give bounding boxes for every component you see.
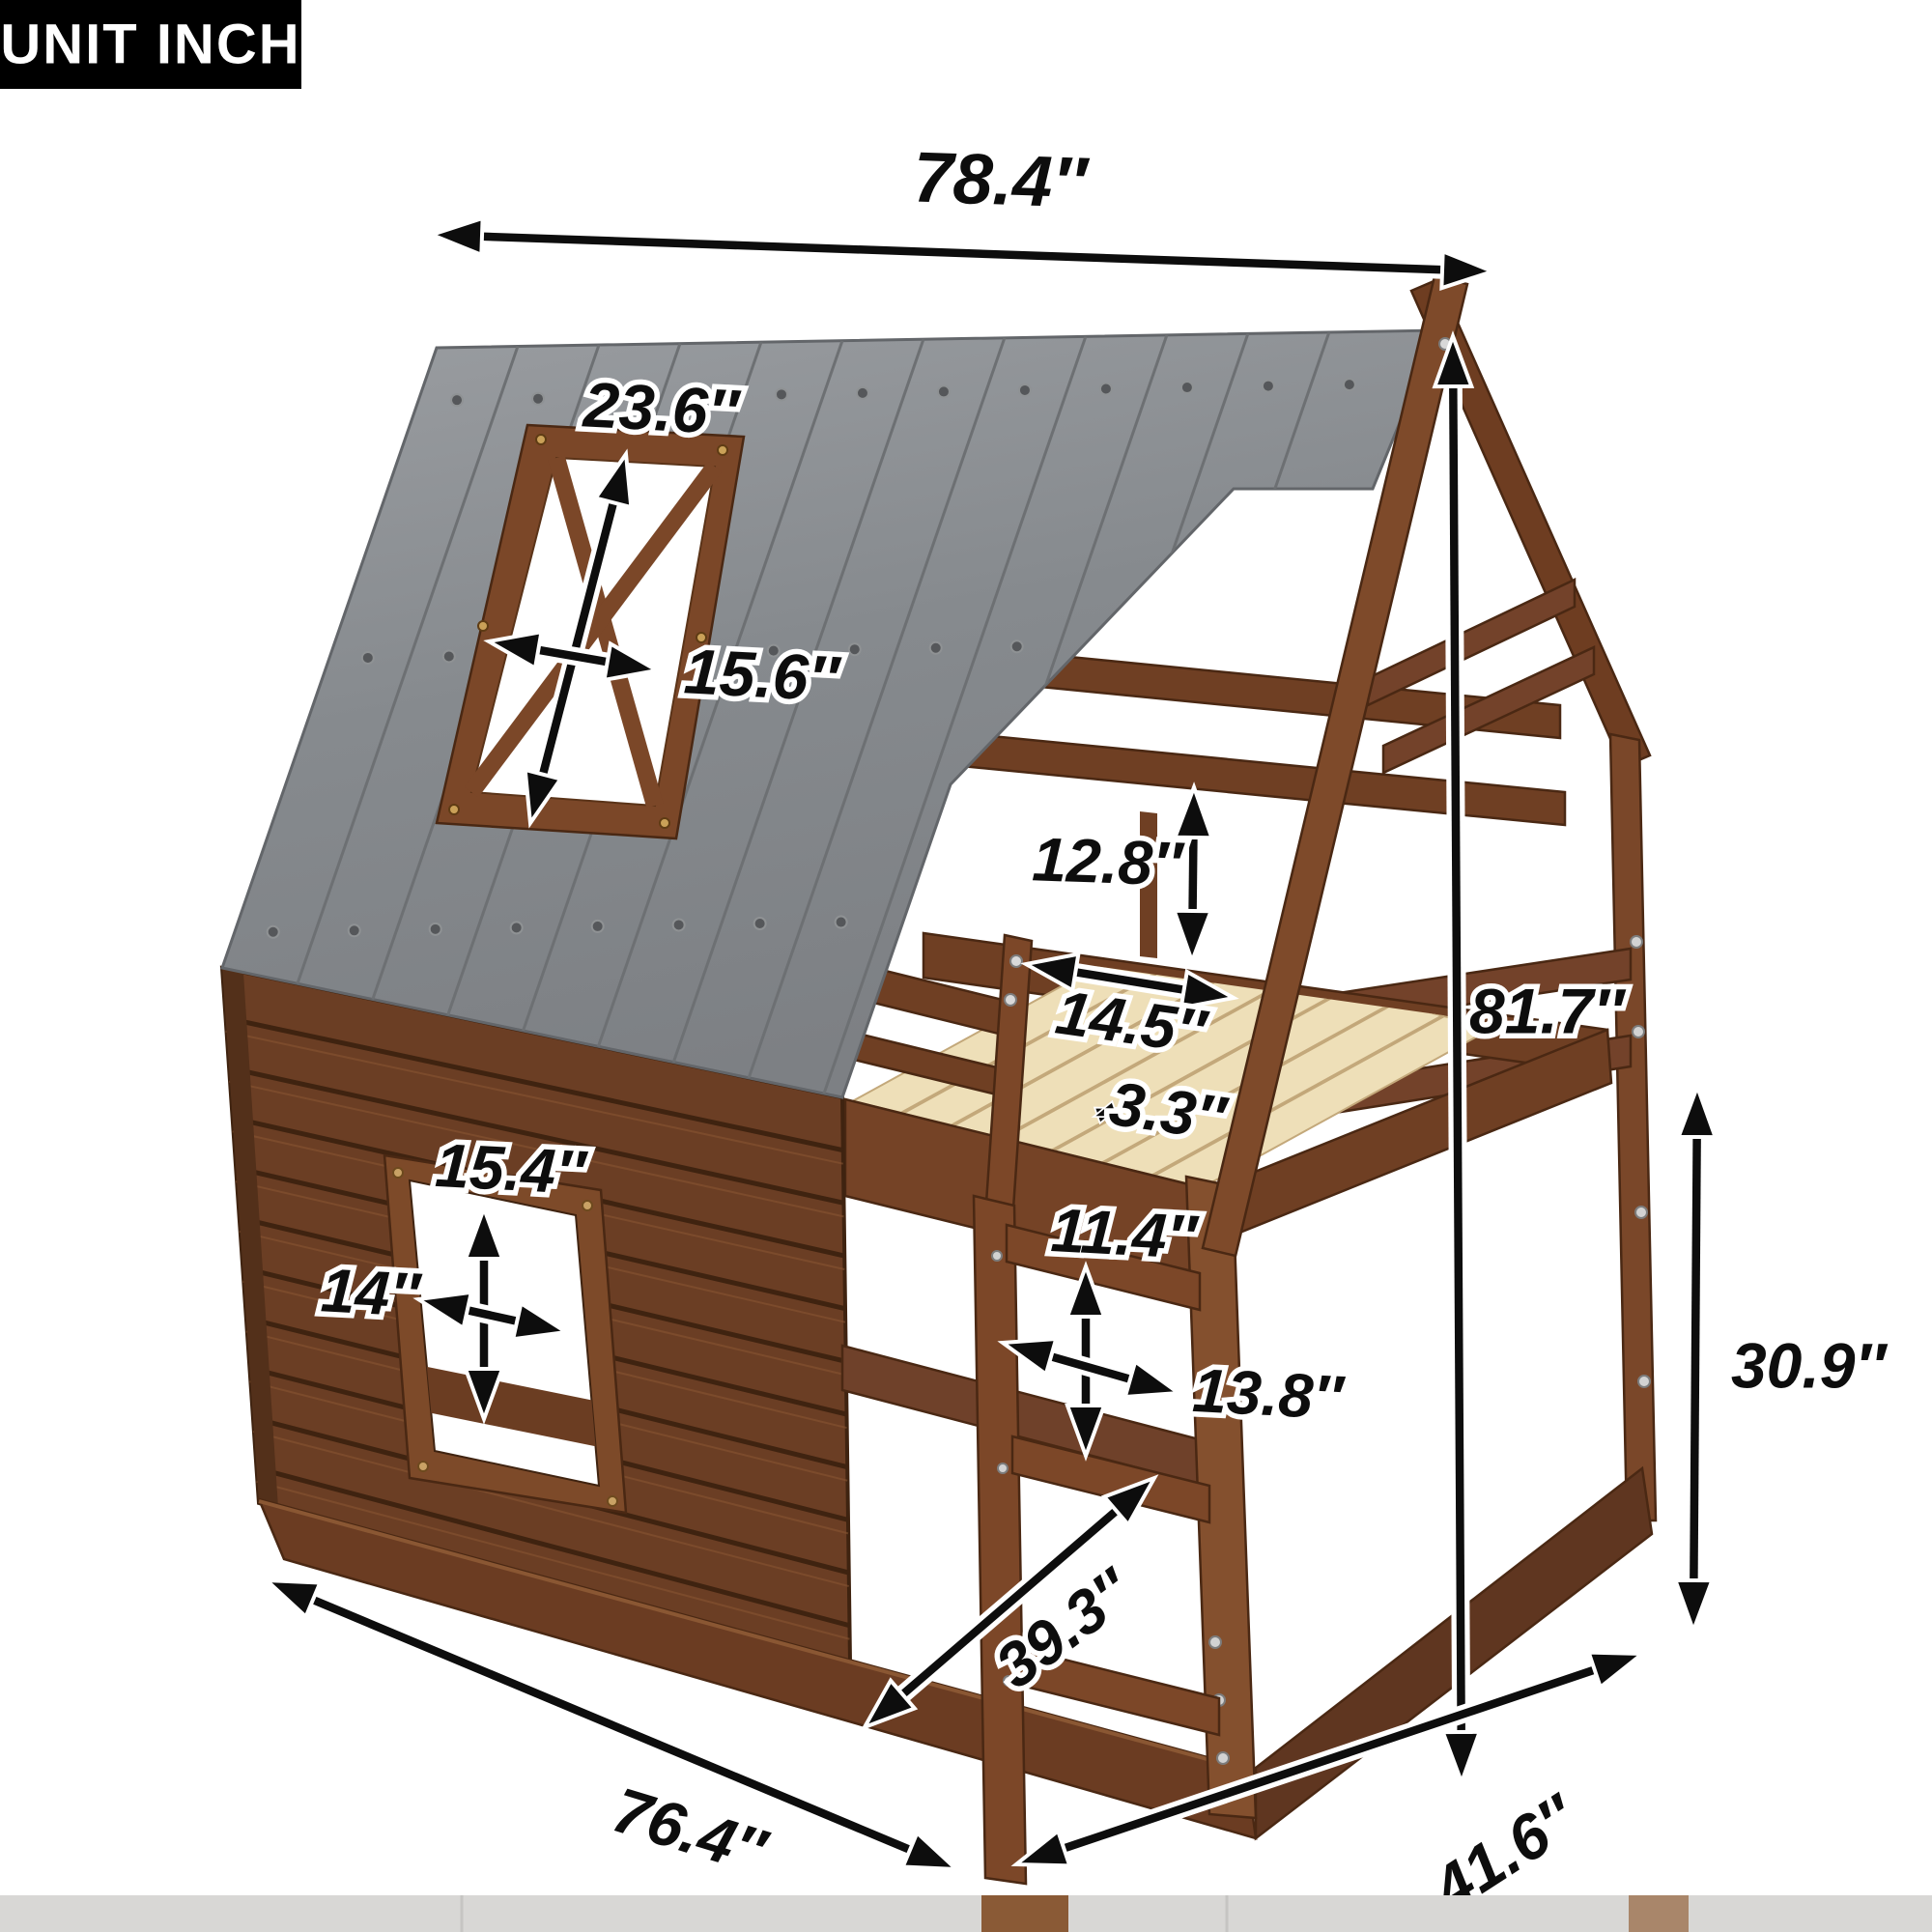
roof-screw [776, 388, 787, 400]
dim-arrow-roof-length [432, 218, 1492, 288]
roof-screw [857, 387, 868, 399]
diagram-svg: 78.4″ 23.6″ 15.6″ 12.8″ 14.5″ 3.3″ 81.7″… [0, 0, 1932, 1932]
bottom-photo-strip [0, 1895, 1932, 1932]
roof-window-screw [478, 621, 488, 631]
post-bolt [1633, 1026, 1644, 1037]
strip-wood-fragment [1629, 1895, 1689, 1932]
roof-window-screw [536, 435, 546, 444]
post-bolt [1638, 1376, 1650, 1387]
roof-screw [917, 915, 928, 926]
dim-label-ladder-rung-spacing: 11.4″ [1049, 1195, 1200, 1272]
roof-screw [1174, 638, 1185, 649]
roof-screw [511, 922, 523, 933]
post-bolt [1209, 1636, 1221, 1648]
roof-screw [836, 917, 847, 928]
roof-window-screw [660, 818, 669, 828]
roof-screw [673, 919, 685, 930]
roof-screw [930, 642, 942, 654]
rear-right-post [1610, 734, 1656, 1520]
roof-screw [1255, 637, 1266, 648]
dim-label-wall-window-height: 15.4″ [434, 1130, 589, 1207]
strip-wood-fragment [981, 1895, 1068, 1932]
roof-screw [1344, 379, 1355, 390]
roof-screw [1263, 381, 1274, 392]
roof-screw [362, 652, 374, 664]
dim-arrow-under-bed-clearance [1675, 1087, 1715, 1631]
dim-label-wall-window-width: 14″ [320, 1255, 424, 1329]
post-bolt [1635, 1207, 1647, 1218]
dim-label-ladder-width: 13.8″ [1191, 1355, 1347, 1433]
post-bolt [1631, 936, 1642, 948]
roof-screw [268, 926, 279, 938]
roof-screw [1011, 640, 1023, 652]
ladder-bolt [998, 1463, 1008, 1473]
window-screw [608, 1496, 617, 1506]
ladder-bolt [992, 1251, 1002, 1261]
post-bolt [1217, 1752, 1229, 1764]
rear-guardrail-mid [952, 732, 1565, 825]
roof-screw [938, 385, 950, 397]
roof-screw [998, 914, 1009, 925]
handrail-screw [1005, 994, 1016, 1006]
dim-label-roof-window-height: 23.6″ [580, 368, 742, 448]
roof-screw [1079, 912, 1091, 923]
ladder-left-stile [974, 1196, 1026, 1884]
unit-badge: UNIT INCH [0, 0, 301, 89]
roof-screw [849, 643, 861, 655]
dim-label-under-bed-clearance: 30.9″ [1731, 1329, 1888, 1401]
roof-screw [1160, 911, 1172, 923]
window-screw [393, 1168, 403, 1178]
window-screw [418, 1462, 428, 1471]
dim-label-total-height: 81.7″ [1469, 975, 1626, 1046]
roof-screw [1093, 639, 1104, 651]
unit-badge-label: UNIT INCH [0, 13, 300, 75]
roof-screw [532, 393, 544, 405]
roof-screw [443, 650, 455, 662]
dim-label-guardrail-height: 12.8″ [1031, 824, 1185, 898]
roof-screw [349, 924, 360, 936]
dim-label-roof-window-width: 15.6″ [682, 635, 842, 714]
roof-window-screw [449, 805, 459, 814]
roof-screw [1100, 384, 1112, 395]
roof-screw [1181, 382, 1193, 393]
handrail-screw [1010, 955, 1022, 967]
roof-screw [1019, 384, 1031, 396]
roof-screw [754, 918, 766, 929]
product-dimension-diagram: 78.4″ 23.6″ 15.6″ 12.8″ 14.5″ 3.3″ 81.7″… [0, 0, 1932, 1932]
window-screw [582, 1201, 592, 1210]
dim-label-roof-length: 78.4″ [912, 136, 1092, 222]
roof-screw [592, 921, 604, 932]
roof-screw [430, 923, 441, 935]
roof-screw [451, 394, 463, 406]
